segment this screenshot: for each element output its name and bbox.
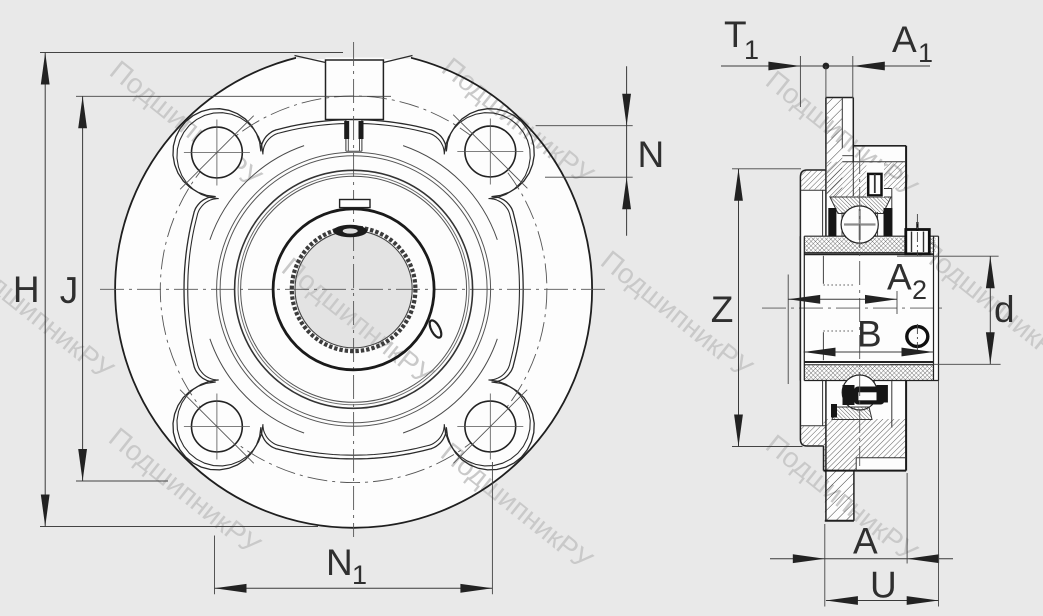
svg-text:A: A (853, 521, 878, 562)
svg-text:2: 2 (912, 275, 927, 305)
svg-text:A: A (892, 19, 917, 60)
svg-text:N: N (326, 542, 353, 583)
svg-text:1: 1 (744, 35, 759, 65)
svg-text:1: 1 (918, 38, 933, 68)
svg-text:d: d (994, 289, 1015, 330)
svg-text:A: A (887, 257, 912, 298)
svg-text:B: B (857, 314, 882, 355)
svg-text:H: H (13, 269, 40, 310)
svg-text:N: N (638, 134, 665, 175)
svg-text:1: 1 (352, 560, 367, 590)
svg-text:U: U (870, 565, 897, 606)
svg-text:J: J (60, 270, 79, 311)
svg-text:Z: Z (711, 289, 734, 330)
